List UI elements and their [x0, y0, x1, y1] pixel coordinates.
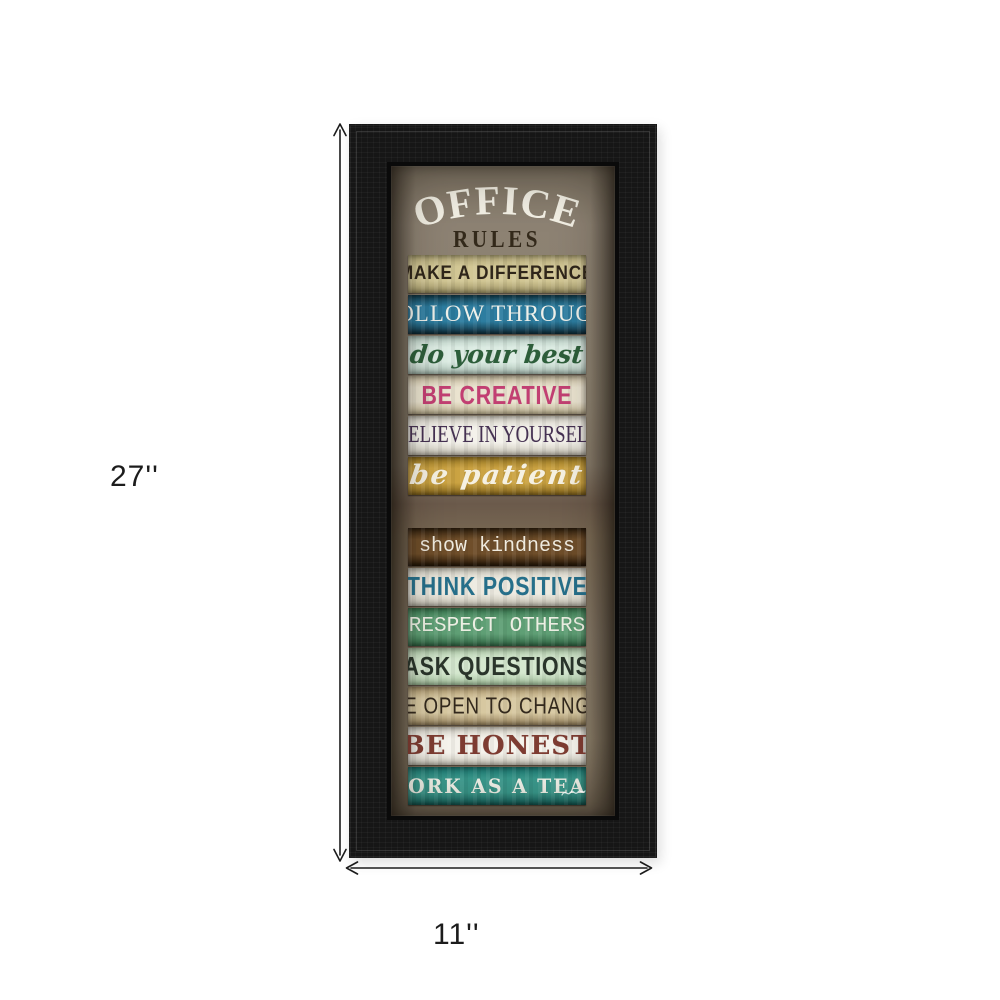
- height-dimension-label: 27'': [110, 460, 159, 494]
- rule-text: WORK AS A TEAM: [408, 774, 586, 798]
- rule-text: RESPECT OTHERS: [409, 615, 585, 638]
- rule-text: BELIEVE IN YOURSELF: [408, 422, 586, 449]
- rule-strip: ASK QUESTIONS: [408, 648, 586, 686]
- rule-strip: THINK POSITIVE: [408, 568, 586, 606]
- svg-text:OFFICE: OFFICE: [408, 178, 586, 234]
- rule-strip: do your best: [408, 336, 586, 374]
- rule-text: BE OPEN TO CHANGE: [408, 693, 586, 720]
- rule-strip: MAKE A DIFFERENCE: [408, 255, 586, 293]
- sign-board: OFFICE RULES MAKE A DIFFERENCE FOLLOW TH…: [387, 162, 619, 820]
- rule-strip: be patient: [408, 457, 586, 495]
- title-office-text: OFFICE: [408, 178, 586, 234]
- height-dimension-arrow: [334, 124, 346, 861]
- rule-strip: WORK AS A TEAM: [408, 767, 586, 805]
- rule-text: MAKE A DIFFERENCE: [408, 263, 586, 285]
- rule-text: THINK POSITIVE: [408, 571, 586, 602]
- rule-text: ASK QUESTIONS: [408, 651, 586, 682]
- artwork-title: OFFICE RULES: [408, 178, 586, 258]
- rule-strip: BE HONEST: [408, 727, 586, 765]
- rule-strip: RESPECT OTHERS: [408, 608, 586, 646]
- title-office-arc: OFFICE: [408, 178, 586, 234]
- width-dimension-label: 11'': [433, 918, 480, 952]
- artist-signature: [561, 786, 587, 800]
- rule-text: show kindness: [419, 535, 575, 558]
- rule-text: BE CREATIVE: [422, 380, 573, 411]
- picture-frame: OFFICE RULES MAKE A DIFFERENCE FOLLOW TH…: [349, 124, 657, 858]
- title-rules-text: RULES: [419, 227, 576, 254]
- rule-strip: FOLLOW THROUGH: [408, 295, 586, 333]
- rule-text: BE HONEST: [408, 731, 586, 761]
- rule-strip: BE OPEN TO CHANGE: [408, 687, 586, 725]
- product-image: 27'' 11'' OFFICE RULES MAKE A DIFFERENCE…: [0, 0, 1000, 1000]
- rule-strip: BELIEVE IN YOURSELF: [408, 416, 586, 454]
- strip-group-top: MAKE A DIFFERENCE FOLLOW THROUGH do your…: [408, 255, 586, 495]
- rule-strip: show kindness: [408, 528, 586, 566]
- rule-strip: BE CREATIVE: [408, 376, 586, 414]
- rule-text: FOLLOW THROUGH: [408, 301, 586, 327]
- width-dimension-arrow: [347, 862, 652, 874]
- rule-text: be patient: [408, 460, 586, 491]
- strip-group-bottom: show kindness THINK POSITIVE RESPECT OTH…: [408, 528, 586, 805]
- rule-text: do your best: [409, 340, 585, 369]
